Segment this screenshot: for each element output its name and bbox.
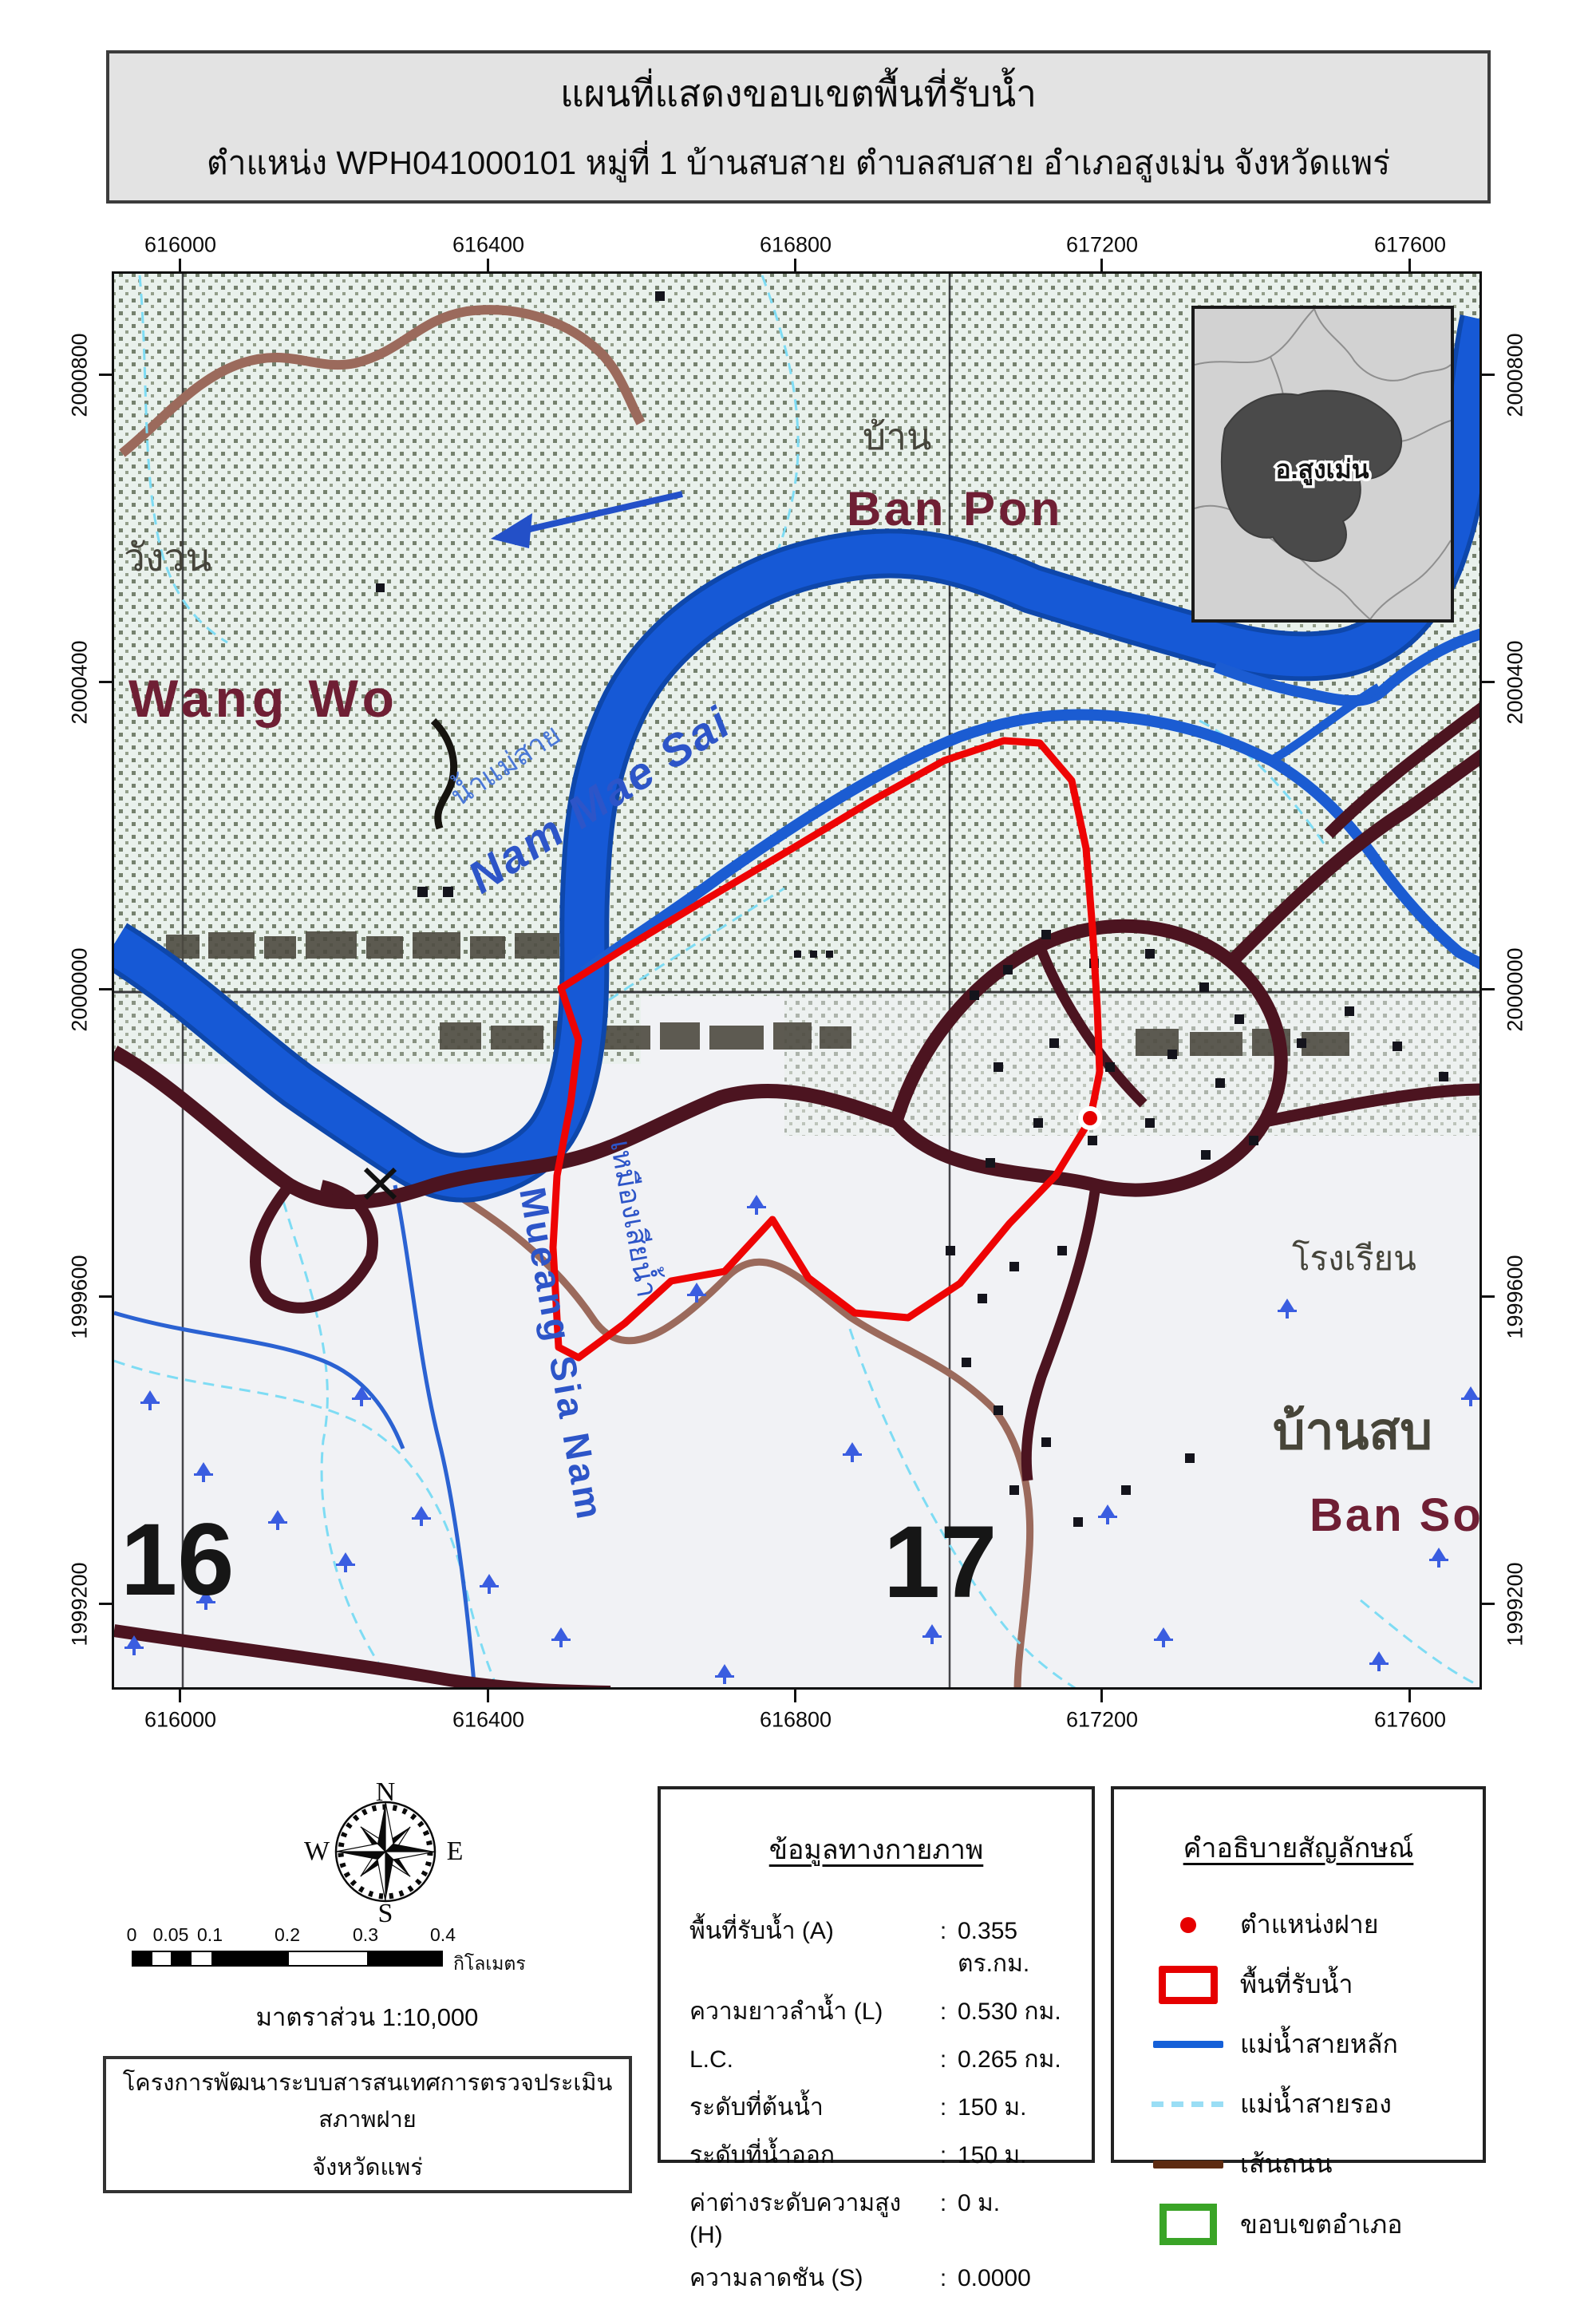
watershed-area-icon	[1136, 1966, 1240, 2004]
info-value: 150 ม.	[958, 2089, 1071, 2126]
info-value: 0.355 ตร.กม.	[958, 1918, 1071, 1983]
x-tick	[1408, 259, 1411, 271]
info-label: ระดับที่น้ำออก	[689, 2137, 929, 2174]
info-colon: :	[929, 2142, 958, 2169]
info-label: ระดับที่ต้นน้ำ	[689, 2089, 929, 2126]
y-axis-label-right: 2000400	[1503, 640, 1528, 724]
y-axis-label-right: 2000000	[1503, 947, 1528, 1031]
x-tick	[1100, 1690, 1103, 1702]
weir-marker	[1078, 1106, 1102, 1130]
y-tick	[1482, 374, 1495, 376]
road-icon	[1136, 2161, 1240, 2169]
x-axis-label-top: 617200	[1066, 233, 1138, 258]
compass-e-label: E	[447, 1836, 464, 1867]
y-tick	[1482, 1295, 1495, 1298]
info-row: ค่าต่างระดับความสูง (H):0 ม.	[689, 2184, 1071, 2249]
info-colon: :	[929, 2265, 958, 2292]
label-school: โรงเรียน	[1292, 1239, 1416, 1277]
legend-item: ตำแหน่งฝาย	[1136, 1904, 1475, 1945]
info-value: 0 ม.	[958, 2184, 1071, 2222]
scale-bar-segment	[289, 1952, 367, 1965]
scalebar-tick-label: 0.05	[153, 1924, 189, 1946]
title-box: แผนที่แสดงขอบเขตพื้นที่รับน้ำ ตำแหน่ง WP…	[106, 50, 1491, 204]
legend-label: แม่น้ำสายรอง	[1240, 2084, 1392, 2125]
label-ban-sop-thai: บ้านสบ	[1273, 1402, 1432, 1460]
x-axis-label-top: 616000	[144, 233, 216, 258]
info-colon: :	[929, 2190, 958, 2217]
map-title: แผนที่แสดงขอบเขตพื้นที่รับน้ำ	[560, 65, 1037, 123]
scalebar-tick-label: 0.1	[197, 1924, 223, 1946]
y-tick	[99, 681, 112, 683]
x-axis-label-bottom: 616800	[760, 1708, 832, 1733]
y-axis-label-left: 1999600	[68, 1255, 93, 1338]
label-wang-won-thai: วังว่น	[124, 537, 211, 579]
info-label: ความยาวลำน้ำ (L)	[689, 1993, 929, 2030]
y-axis-label-left: 2000800	[68, 333, 93, 417]
label-grid-16: 16	[120, 1503, 234, 1617]
x-tick	[794, 1690, 796, 1702]
y-tick	[99, 1295, 112, 1298]
y-tick	[1482, 681, 1495, 683]
info-label: พื้นที่รับน้ำ (A)	[689, 1912, 929, 1950]
x-axis-label-top: 616400	[452, 233, 524, 258]
label-grid-17: 17	[883, 1505, 997, 1619]
x-axis-label-bottom: 616000	[144, 1708, 216, 1733]
info-row: ระดับที่ต้นน้ำ:150 ม.	[689, 2089, 1071, 2126]
label-ban-pon-en: Ban Pon	[847, 482, 1063, 536]
legend-item: แม่น้ำสายหลัก	[1136, 2024, 1475, 2065]
legend-label: พื้นที่รับน้ำ	[1240, 1964, 1353, 2005]
district-inset-svg: อ.สูงเม่น	[1195, 309, 1451, 619]
legend-header: คำอธิบายสัญลักษณ์	[1114, 1826, 1483, 1869]
project-line-1: โครงการพัฒนาระบบสารสนเทศการตรวจประเมินสภ…	[106, 2064, 629, 2137]
x-tick	[794, 259, 796, 271]
legend-item: พื้นที่รับน้ำ	[1136, 1964, 1475, 2005]
secondary-river-icon	[1136, 2101, 1240, 2107]
y-axis-label-right: 2000800	[1503, 333, 1528, 417]
y-tick	[1482, 988, 1495, 990]
info-row: L.C.:0.265 กม.	[689, 2041, 1071, 2078]
physical-data-panel: ข้อมูลทางกายภาพ พื้นที่รับน้ำ (A):0.355 …	[658, 1786, 1095, 2163]
legend-label: เส้นถนน	[1240, 2144, 1332, 2184]
x-axis-label-top: 616800	[760, 233, 832, 258]
scalebar-tick-label: 0.4	[430, 1924, 456, 1946]
scalebar-unit: กิโลเมตร	[453, 1950, 526, 1979]
district-boundary-icon	[1136, 2204, 1240, 2245]
map-sheet: { "title": { "line1": "แผนที่แสดงขอบเขตพ…	[0, 0, 1596, 2255]
scalebar-tick-label: 0	[127, 1924, 137, 1946]
y-tick	[99, 988, 112, 990]
info-colon: :	[929, 2094, 958, 2121]
y-axis-label-left: 2000400	[68, 640, 93, 724]
y-axis-label-left: 2000000	[68, 947, 93, 1031]
y-tick	[1482, 1603, 1495, 1605]
scalebar-tick-label: 0.3	[353, 1924, 378, 1946]
info-colon: :	[929, 1918, 958, 1945]
scale-ratio-text: มาตราส่วน 1:10,000	[256, 1997, 479, 2037]
scale-bar-segment	[211, 1952, 289, 1965]
info-row: ความยาวลำน้ำ (L):0.530 กม.	[689, 1993, 1071, 2030]
x-tick	[179, 259, 181, 271]
legend-item: เส้นถนน	[1136, 2144, 1475, 2184]
scale-bar-segment	[152, 1952, 172, 1965]
project-credit-box: โครงการพัฒนาระบบสารสนเทศการตรวจประเมินสภ…	[103, 2056, 632, 2193]
y-tick	[99, 374, 112, 376]
scale-bar-segment	[367, 1952, 441, 1965]
info-row: ระดับที่น้ำออก:150 ม.	[689, 2137, 1071, 2174]
label-wang-won-en: Wang Wo	[128, 669, 399, 728]
info-label: ความลาดชัน (S)	[689, 2259, 929, 2297]
x-axis-label-bottom: 616400	[452, 1708, 524, 1733]
map-subtitle: ตำแหน่ง WPH041000101 หมู่ที่ 1 บ้านสบสาย…	[207, 137, 1390, 189]
legend-panel: คำอธิบายสัญลักษณ์ ตำแหน่งฝาย พื้นที่รับน…	[1111, 1786, 1486, 2163]
compass-s-label: S	[378, 1899, 393, 1929]
x-tick	[487, 259, 489, 271]
info-value: 150 ม.	[958, 2137, 1071, 2174]
x-axis-label-top: 617600	[1374, 233, 1446, 258]
physical-data-header: ข้อมูลทางกายภาพ	[661, 1828, 1092, 1871]
scale-bar-segment	[192, 1952, 211, 1965]
x-axis-label-bottom: 617200	[1066, 1708, 1138, 1733]
info-colon: :	[929, 1999, 958, 2026]
scale-bar-segment	[172, 1952, 192, 1965]
weir-point-icon	[1136, 1917, 1240, 1933]
main-river-icon	[1136, 2041, 1240, 2048]
info-value: 0.0000	[958, 2265, 1071, 2292]
x-axis-label-bottom: 617600	[1374, 1708, 1446, 1733]
compass-n-label: N	[376, 1777, 396, 1808]
info-value: 0.530 กม.	[958, 1993, 1071, 2030]
info-label: ค่าต่างระดับความสูง (H)	[689, 2184, 929, 2249]
info-label: L.C.	[689, 2046, 929, 2074]
label-ban-sop-en: Ban So	[1310, 1489, 1482, 1541]
scale-bar-segment	[133, 1952, 152, 1965]
project-line-2: จังหวัดแพร่	[312, 2149, 423, 2185]
compass-w-label: W	[304, 1836, 330, 1867]
y-axis-label-right: 1999600	[1503, 1255, 1528, 1338]
x-tick	[1100, 259, 1103, 271]
y-axis-label-left: 1999200	[68, 1562, 93, 1646]
x-tick	[487, 1690, 489, 1702]
legend-label: ขอบเขตอำเภอ	[1240, 2204, 1402, 2245]
info-colon: :	[929, 2046, 958, 2074]
x-tick	[1408, 1690, 1411, 1702]
district-inset-map: อ.สูงเม่น	[1191, 306, 1454, 623]
y-tick	[99, 1603, 112, 1605]
legend-item: แม่น้ำสายรอง	[1136, 2084, 1475, 2125]
info-row: พื้นที่รับน้ำ (A):0.355 ตร.กม.	[689, 1912, 1071, 1983]
legend-label: ตำแหน่งฝาย	[1240, 1904, 1378, 1945]
legend-item: ขอบเขตอำเภอ	[1136, 2204, 1475, 2245]
label-ban-pon-thai: บ้าน	[863, 416, 931, 457]
scale-bar	[132, 1951, 443, 1967]
scalebar-tick-label: 0.2	[275, 1924, 300, 1946]
district-inset-label: อ.สูงเม่น	[1275, 455, 1369, 486]
info-value: 0.265 กม.	[958, 2041, 1071, 2078]
legend-label: แม่น้ำสายหลัก	[1240, 2024, 1398, 2065]
x-tick	[179, 1690, 181, 1702]
y-axis-label-right: 1999200	[1503, 1562, 1528, 1646]
info-row: ความลาดชัน (S):0.0000	[689, 2259, 1071, 2297]
